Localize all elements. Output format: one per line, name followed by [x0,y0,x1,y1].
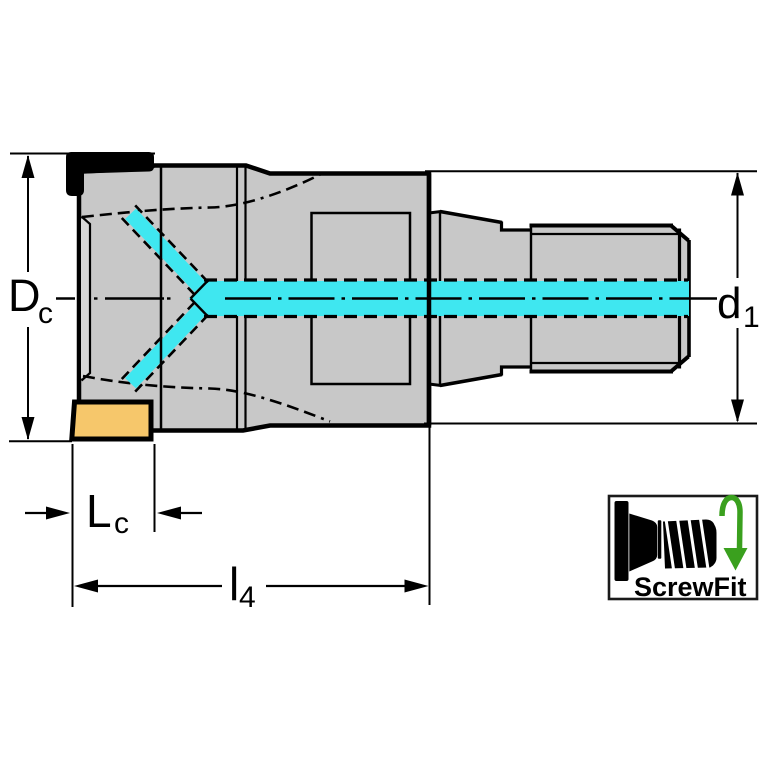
svg-text:4: 4 [239,581,256,614]
svg-text:ScrewFit: ScrewFit [634,572,747,602]
svg-text:d: d [717,279,741,328]
svg-text:D: D [8,270,41,321]
svg-text:L: L [86,485,112,537]
svg-text:c: c [38,297,53,330]
svg-text:1: 1 [743,301,760,334]
svg-text:l: l [229,558,239,610]
svg-text:c: c [114,507,129,540]
